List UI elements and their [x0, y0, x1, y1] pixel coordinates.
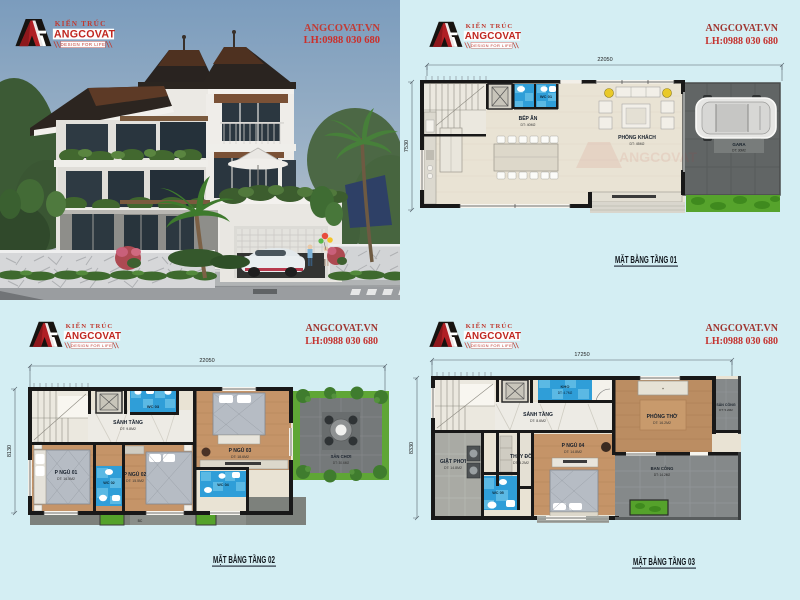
- svg-text:DT: 4.7M2: DT: 4.7M2: [558, 391, 573, 395]
- svg-text:WC 03: WC 03: [147, 404, 160, 409]
- svg-text:GIẶT PHƠI: GIẶT PHƠI: [440, 458, 467, 465]
- svg-text:P NGỦ 04: P NGỦ 04: [562, 442, 585, 449]
- svg-text:LH:0988 030 680: LH:0988 030 680: [705, 36, 778, 47]
- svg-text:ANGCOVAT.VN: ANGCOVAT.VN: [705, 323, 778, 334]
- svg-text:MẶT BẰNG TẦNG 01: MẶT BẰNG TẦNG 01: [615, 253, 677, 266]
- svg-text:WC 01: WC 01: [540, 94, 553, 99]
- svg-text:DT: 15.5M2: DT: 15.5M2: [126, 479, 144, 483]
- svg-text:DT: 14.8M2: DT: 14.8M2: [444, 466, 462, 470]
- svg-text:THAY ĐỒ: THAY ĐỒ: [510, 453, 532, 460]
- svg-text:WC 04: WC 04: [217, 483, 229, 487]
- svg-text:SÂN CHƠI: SÂN CHƠI: [331, 454, 352, 459]
- svg-text:22050: 22050: [199, 358, 214, 364]
- svg-text:SẢNH TẦNG: SẢNH TẦNG: [113, 419, 143, 426]
- svg-text:KHO: KHO: [561, 384, 570, 389]
- svg-text:ANGCOVAT.VN: ANGCOVAT.VN: [305, 323, 378, 334]
- svg-text:PHÒNG KHÁCH: PHÒNG KHÁCH: [618, 133, 656, 141]
- svg-text:DT: 8.6M2: DT: 8.6M2: [530, 419, 546, 423]
- svg-text:DT: 30.6M2: DT: 30.6M2: [333, 461, 350, 465]
- svg-text:LH:0988 030 680: LH:0988 030 680: [705, 336, 778, 347]
- svg-text:P NGỦ 01: P NGỦ 01: [55, 469, 78, 476]
- svg-text:MẶT BẰNG TẦNG 02: MẶT BẰNG TẦNG 02: [213, 553, 275, 566]
- svg-text:8130: 8130: [7, 445, 13, 457]
- svg-text:SÂN CÔNG: SÂN CÔNG: [716, 402, 736, 407]
- svg-text:PHÒNG THỜ: PHÒNG THỜ: [647, 412, 678, 420]
- svg-text:DT: 16.5M2: DT: 16.5M2: [57, 477, 75, 481]
- svg-text:8330: 8330: [409, 442, 415, 454]
- svg-text:BAN CÔNG: BAN CÔNG: [651, 466, 674, 471]
- svg-text:P NGỦ 02: P NGỦ 02: [124, 471, 147, 478]
- svg-text:P NGỦ 03: P NGỦ 03: [229, 447, 252, 454]
- svg-text:DT: 18.6M2: DT: 18.6M2: [231, 455, 249, 459]
- svg-text:DT: 40M2: DT: 40M2: [521, 123, 536, 127]
- svg-text:WC 02: WC 02: [103, 481, 115, 485]
- svg-text:17250: 17250: [574, 352, 589, 358]
- svg-text:MẶT BẰNG TẦNG 03: MẶT BẰNG TẦNG 03: [633, 555, 695, 568]
- svg-text:ANGCOVAT.VN: ANGCOVAT.VN: [304, 23, 381, 34]
- svg-text:⚭: ⚭: [661, 386, 664, 391]
- svg-text:7530: 7530: [404, 140, 410, 152]
- svg-text:ANGCOVAT: ANGCOVAT: [619, 149, 697, 165]
- svg-text:DT: 9.8M2: DT: 9.8M2: [120, 427, 136, 431]
- svg-text:DT: 5.2M2: DT: 5.2M2: [513, 461, 529, 465]
- svg-text:DT: 14.2M2: DT: 14.2M2: [654, 473, 671, 477]
- svg-text:DT: 30M2: DT: 30M2: [732, 149, 746, 153]
- svg-text:DT: 16.2M2: DT: 16.2M2: [653, 421, 671, 425]
- svg-text:LH:0988 030 680: LH:0988 030 680: [305, 336, 378, 347]
- svg-text:ANGCOVAT.VN: ANGCOVAT.VN: [705, 23, 778, 34]
- svg-text:22050: 22050: [597, 57, 612, 63]
- svg-text:SẢNH TẦNG: SẢNH TẦNG: [523, 411, 553, 418]
- svg-text:BC: BC: [138, 519, 143, 523]
- svg-text:DT: 14.8M2: DT: 14.8M2: [564, 450, 582, 454]
- svg-text:DT: 5.2M2: DT: 5.2M2: [719, 408, 733, 412]
- svg-text:BẾP ĂN: BẾP ĂN: [519, 115, 538, 122]
- svg-text:DT: 45M2: DT: 45M2: [630, 142, 645, 146]
- svg-text:WC 05: WC 05: [492, 491, 504, 495]
- svg-text:GARA: GARA: [732, 142, 746, 147]
- svg-text:LH:0988 030 680: LH:0988 030 680: [304, 35, 380, 46]
